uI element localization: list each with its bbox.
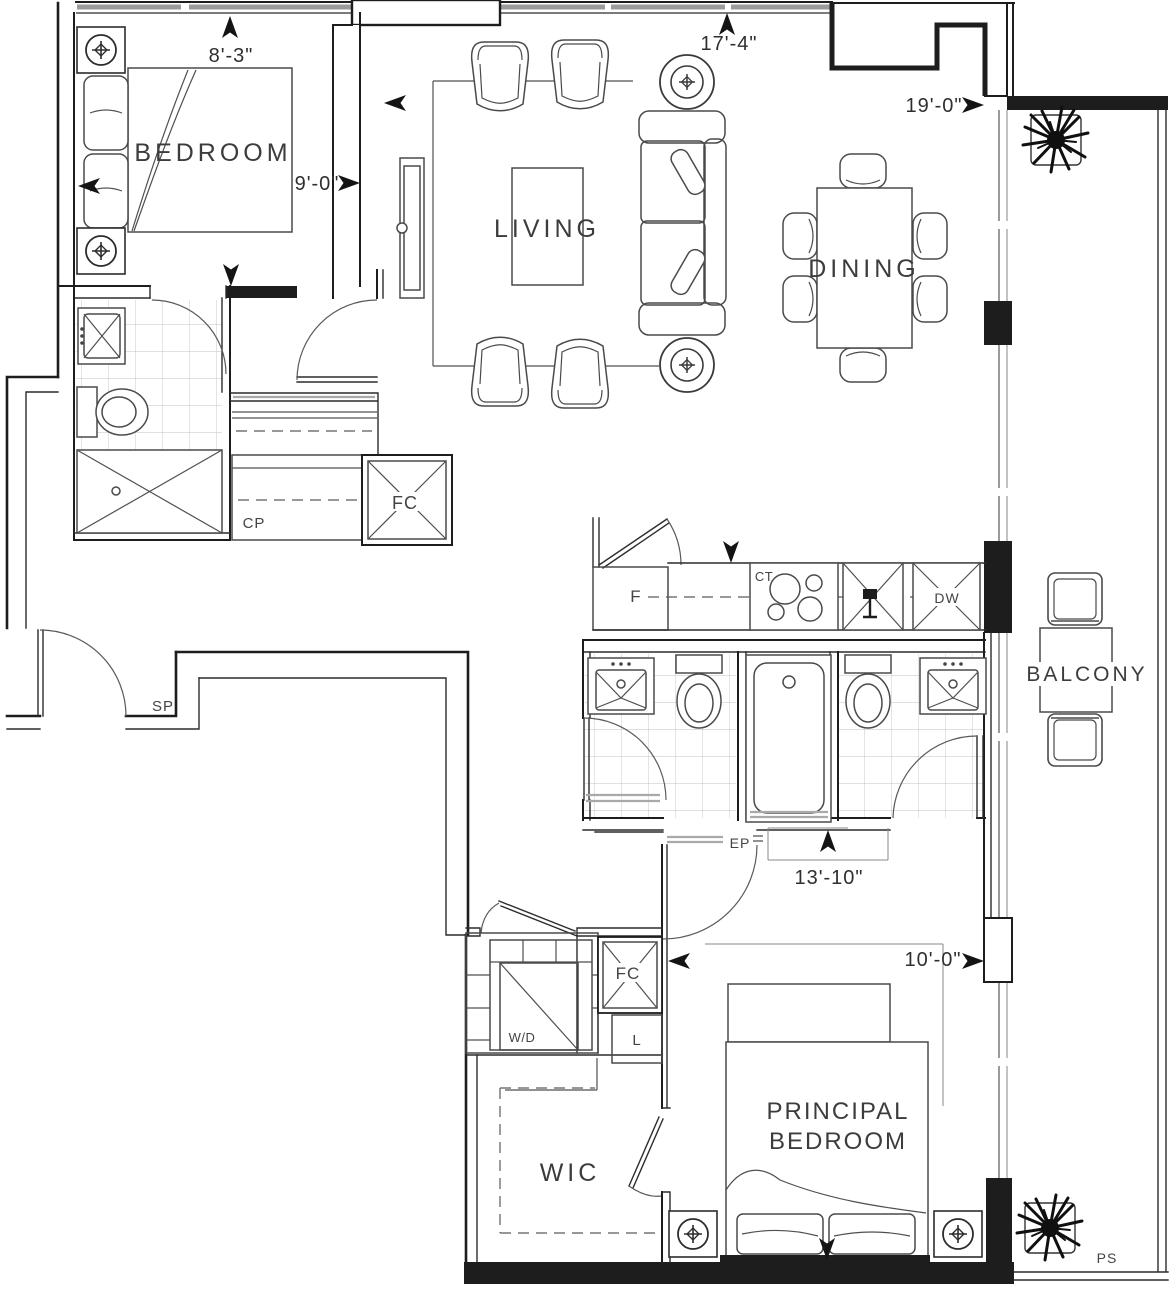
laundry-door	[481, 901, 577, 936]
fridge-door	[599, 519, 681, 568]
dim-arrow-icon	[820, 830, 836, 852]
wic-interior	[500, 1058, 656, 1233]
toilet-icon	[676, 655, 722, 728]
dining-chair-icon	[783, 213, 817, 259]
media-console-icon	[397, 158, 424, 298]
living-label: LIVING	[494, 215, 600, 243]
wic-door	[629, 1117, 663, 1196]
bedroom-furniture	[84, 68, 424, 298]
balcony-chair-icon	[1048, 573, 1102, 625]
dining-label: DINING	[808, 255, 920, 283]
toilet-icon	[845, 655, 891, 728]
vanity-sink-icon	[588, 658, 654, 714]
ceiling-light-icon	[660, 55, 714, 109]
dishwasher-label: DW	[934, 590, 959, 606]
floorplan-drawing: BEDROOM LIVING DINING BALCONY WIC PRINCI…	[0, 0, 1170, 1291]
dim-8-3: 8'-3"	[209, 45, 254, 67]
plant-icon	[1017, 1195, 1082, 1260]
dim-13-10: 13'-10"	[794, 867, 863, 889]
sprinkler-icon	[77, 228, 125, 274]
dim-arrow-icon	[384, 95, 406, 111]
bedroom-label: BEDROOM	[134, 139, 291, 167]
dining-chair-icon	[840, 348, 886, 382]
dim-arrow-icon	[222, 16, 238, 38]
dim-19-0: 19'-0"	[906, 95, 963, 117]
dim-17-4: 17'-4"	[701, 33, 758, 55]
electrical-panel-label: EP	[730, 835, 751, 851]
principal-label-line1: PRINCIPAL	[767, 1098, 910, 1125]
armchair-icon	[552, 40, 609, 109]
dining-chair-icon	[913, 213, 947, 259]
dining-chair-icon	[840, 154, 886, 188]
dim-arrow-icon	[223, 264, 239, 286]
ceiling-light-icon	[660, 338, 714, 392]
dim-10-0: 10'-0"	[905, 949, 962, 971]
plumbing-stack-label: PS	[1097, 1250, 1118, 1266]
kitchen	[593, 563, 985, 630]
balcony-label: BALCONY	[1026, 663, 1147, 686]
balcony-chair-icon	[1048, 714, 1102, 766]
fan-coil-lower-label: FC	[616, 964, 641, 983]
shower-icon	[77, 450, 222, 533]
sofa-icon	[638, 110, 726, 336]
closet-label: CP	[243, 515, 266, 532]
bedroom-door	[297, 300, 377, 382]
armchair-icon	[552, 339, 609, 408]
dim-9-0: 9'-0"	[295, 173, 340, 195]
tub-room	[746, 655, 831, 822]
plant-icon	[1023, 107, 1088, 172]
kitchen-sink-icon	[843, 563, 903, 630]
sprinkler-label: SP	[152, 698, 174, 715]
armchair-icon	[472, 337, 529, 406]
armchair-icon	[472, 42, 529, 111]
dim-arrow-icon	[962, 97, 984, 113]
sprinkler-icon	[934, 1211, 982, 1257]
sprinkler-icon	[669, 1211, 717, 1257]
principal-door	[663, 845, 757, 939]
linen-label: L	[632, 1032, 641, 1049]
washer-dryer-label: W/D	[509, 1030, 536, 1045]
headboard-icon	[728, 984, 890, 1042]
wic-label: WIC	[540, 1159, 601, 1187]
entry-door	[38, 630, 126, 716]
bathtub-icon	[746, 655, 831, 822]
dim-arrow-icon	[962, 953, 984, 969]
toilet-icon	[77, 387, 148, 437]
fridge-label: F	[630, 587, 641, 606]
sprinkler-icon	[77, 27, 125, 73]
vanity-sink-icon	[920, 658, 986, 714]
floorplan-page: BEDROOM LIVING DINING BALCONY WIC PRINCI…	[0, 0, 1170, 1291]
dim-arrow-icon	[719, 13, 735, 35]
fan-coil-upper-label: FC	[392, 493, 418, 513]
cooktop-label: CT	[755, 569, 773, 584]
dim-arrow-icon	[723, 541, 739, 563]
principal-label-line2: BEDROOM	[769, 1128, 907, 1155]
dim-arrow-icon	[668, 953, 690, 969]
vanity-sink-icon	[78, 308, 125, 364]
